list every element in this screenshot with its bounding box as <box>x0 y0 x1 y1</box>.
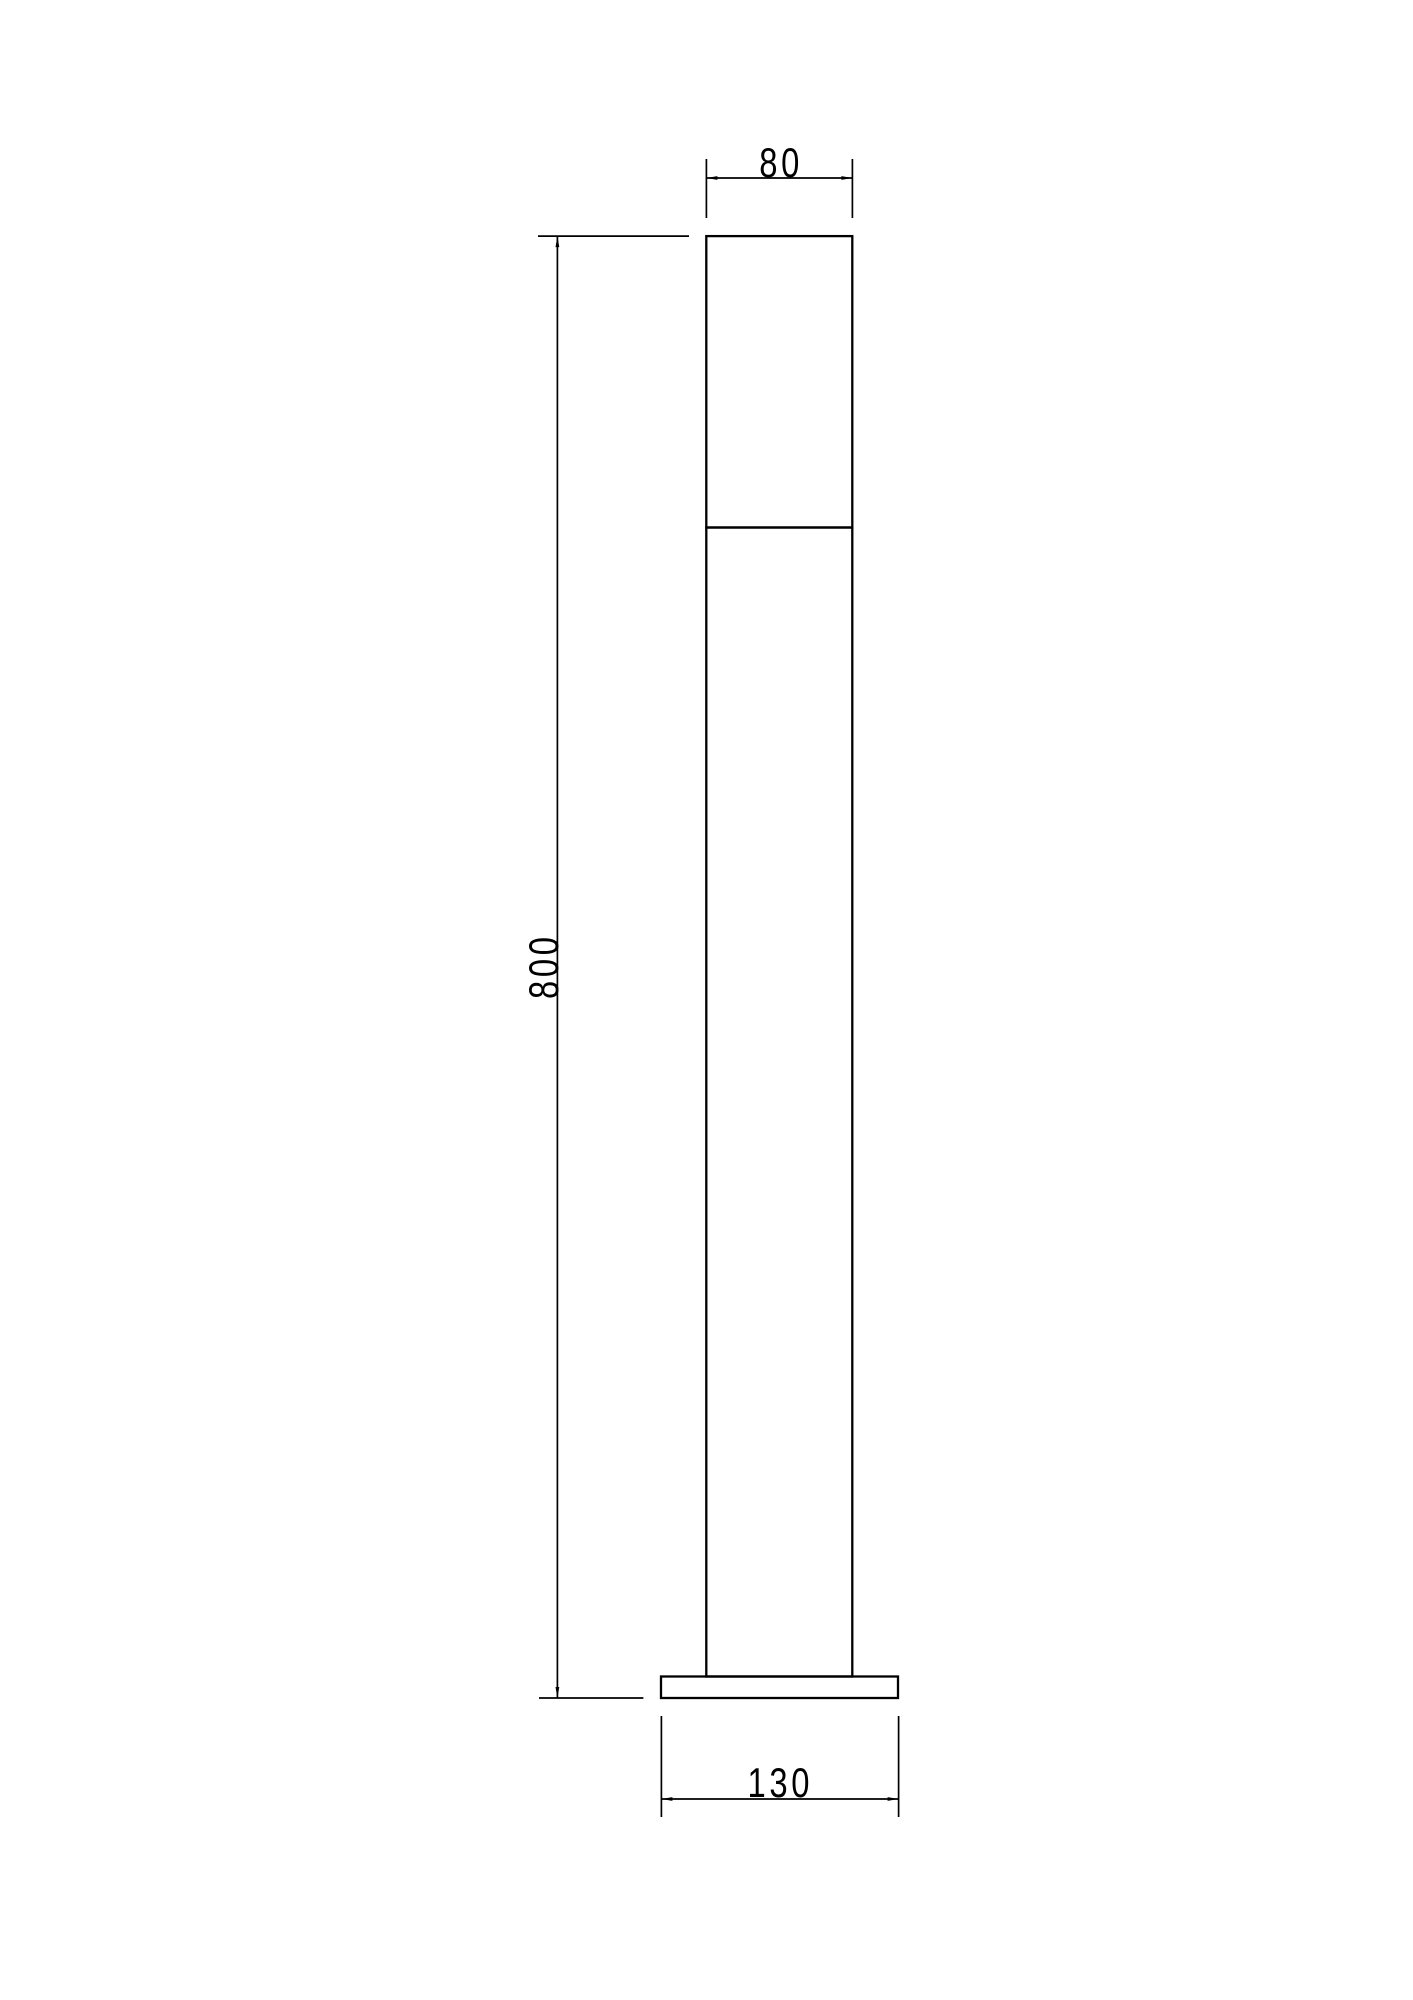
svg-text:80: 80 <box>759 139 803 186</box>
svg-text:130: 130 <box>748 1759 814 1806</box>
svg-text:800: 800 <box>520 933 567 999</box>
